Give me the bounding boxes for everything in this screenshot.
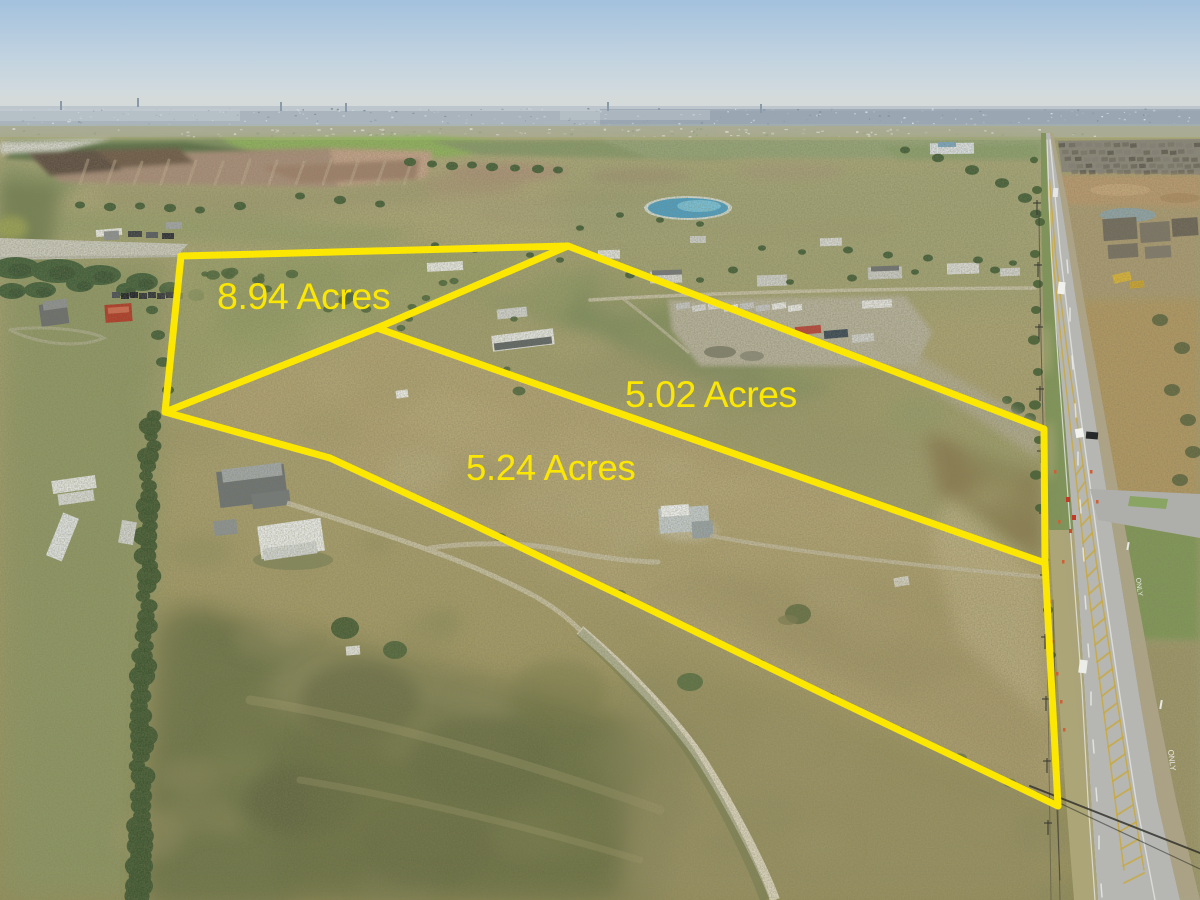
svg-text:5.02 Acres: 5.02 Acres [625, 373, 797, 415]
svg-text:8.94 Acres: 8.94 Acres [217, 275, 390, 317]
svg-text:5.24 Acres: 5.24 Acres [466, 447, 635, 488]
